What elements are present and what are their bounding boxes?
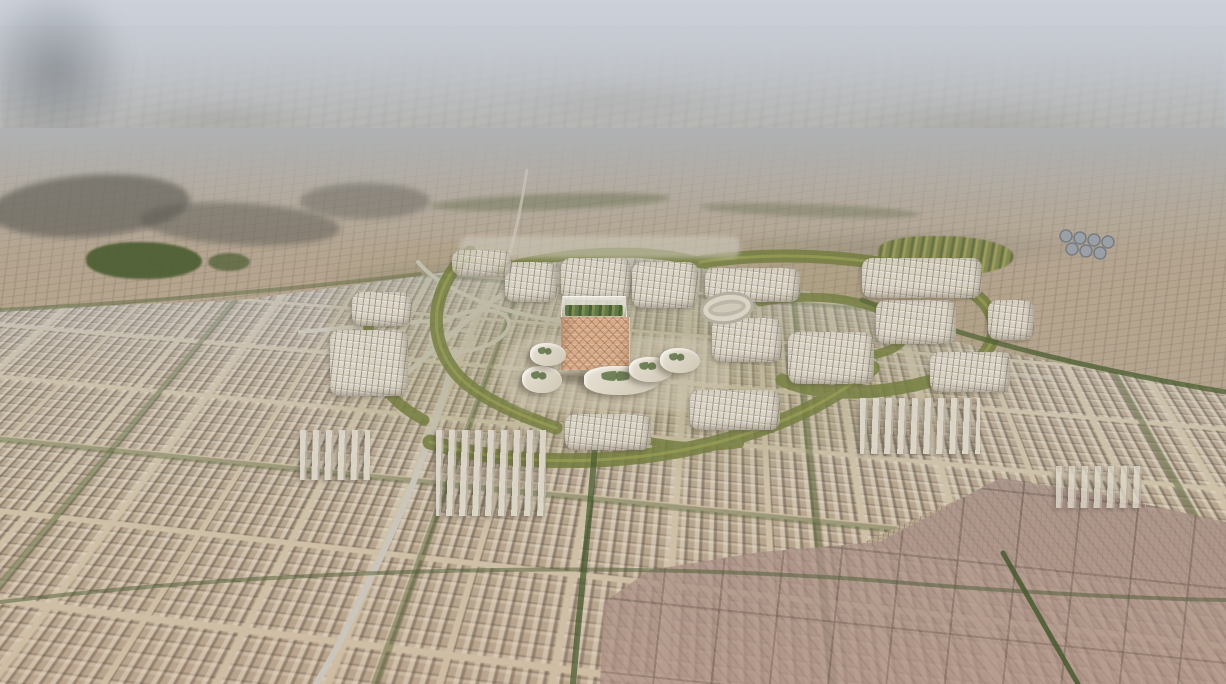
storage-tank	[1066, 243, 1078, 255]
tree-avenue	[0, 570, 1226, 602]
building-cluster	[862, 258, 982, 298]
building-cluster	[788, 332, 874, 384]
building-cluster	[690, 390, 780, 430]
storage-tank	[1102, 236, 1114, 248]
tree-avenue	[1003, 553, 1078, 684]
building-cluster	[876, 300, 956, 344]
building-cluster	[565, 414, 651, 450]
building-cluster	[561, 258, 631, 300]
aerial-city-render	[0, 0, 1226, 684]
cube-rooftop-frame	[561, 296, 627, 318]
building-cluster	[930, 352, 1010, 392]
building-cluster	[712, 318, 782, 362]
building-cluster	[352, 292, 412, 326]
tower-cluster	[1056, 466, 1146, 508]
building-cluster	[988, 300, 1034, 340]
tower-cluster	[436, 430, 546, 516]
storage-tank	[1094, 247, 1106, 259]
oil-storage-tanks	[1060, 230, 1114, 259]
podium-pavilion	[530, 343, 566, 366]
building-cluster	[505, 262, 557, 302]
storage-tank	[1060, 230, 1072, 242]
cube-patterned-facade	[561, 317, 630, 370]
tower-cluster	[860, 398, 980, 454]
podium-pavilion	[660, 348, 700, 373]
cube-skyscraper	[561, 296, 627, 374]
building-cluster	[632, 262, 698, 308]
building-cluster	[452, 250, 512, 276]
storage-tank	[1080, 245, 1092, 257]
podium-pavilion	[522, 366, 562, 393]
storage-tank	[1074, 232, 1086, 244]
rooftop-garden	[565, 305, 623, 316]
tower-cluster	[300, 430, 370, 480]
storage-tank	[1088, 234, 1100, 246]
building-cluster	[330, 330, 408, 396]
